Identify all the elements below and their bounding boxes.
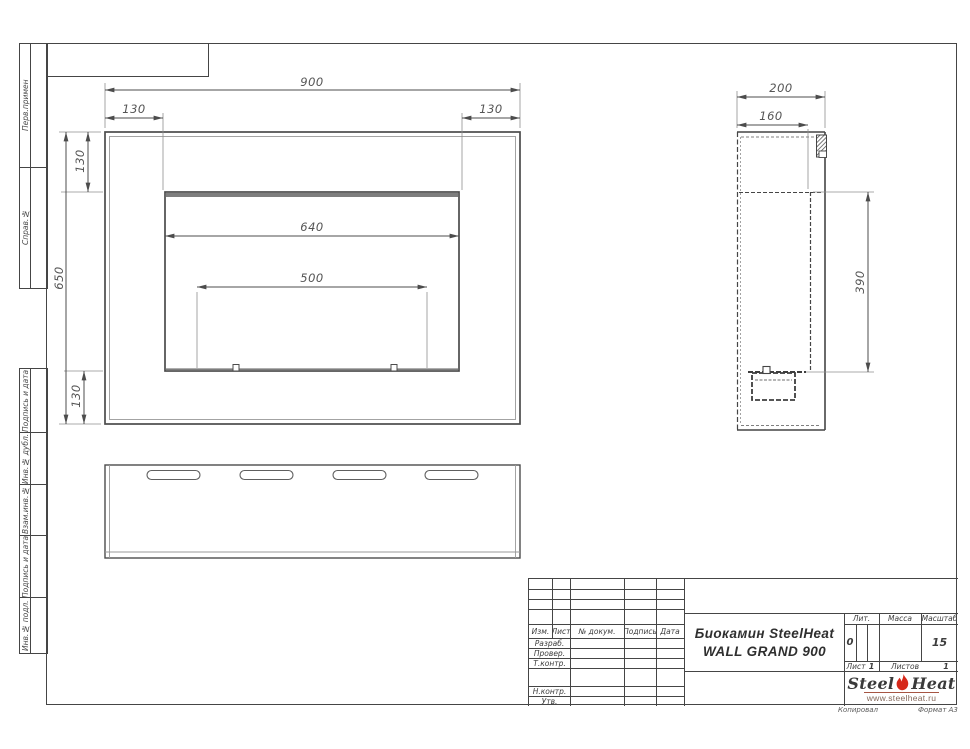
dim-opening-width: 640 bbox=[300, 220, 323, 234]
document-title-line1: Биокамин SteelHeat bbox=[695, 626, 834, 641]
dim-burner-width: 500 bbox=[300, 271, 323, 285]
margin-label-sprav-no: Справ.№ bbox=[20, 168, 31, 287]
tb-row-checked: Провер. bbox=[529, 648, 570, 658]
tb-header-date: Дата bbox=[656, 624, 684, 638]
tb-lit-label: Лит. bbox=[844, 613, 879, 624]
margin-label-vzam-inv: Взам.инв.№ bbox=[20, 485, 31, 535]
margin-label-podpis-data-2: Подпись и дата bbox=[20, 536, 31, 597]
margin-label-podpis-data-1: Подпись и дата bbox=[20, 369, 31, 432]
copied-note: Копировал bbox=[838, 706, 878, 714]
tb-scale-value: 15 bbox=[921, 624, 958, 661]
left-margin-top-strip: Перв.примен Справ.№ bbox=[19, 43, 48, 289]
tb-row-approved: Утв. bbox=[529, 696, 570, 706]
document-title-line2: WALL GRAND 900 bbox=[703, 644, 826, 659]
logo-word-heat: Heat bbox=[911, 677, 955, 691]
tb-row-ncontrol: Н.контр. bbox=[529, 686, 570, 696]
format-note: Формат А3 bbox=[918, 706, 958, 714]
logo-website: www.steelheat.ru bbox=[864, 692, 940, 703]
tb-row-developed: Разраб. bbox=[529, 638, 570, 648]
tb-scale-label: Масштаб bbox=[921, 613, 958, 624]
flame-icon bbox=[895, 674, 910, 691]
drawing-sheet: Перв.примен Справ.№ Подпись и дата Инв.№… bbox=[0, 0, 970, 749]
dim-side-depth: 200 bbox=[769, 81, 792, 95]
tb-header-izm: Изм. bbox=[529, 624, 552, 638]
dim-front-bottom-offset: 130 bbox=[69, 384, 83, 407]
tb-sheet-value: 1 bbox=[865, 661, 878, 671]
logo-word-steel: Steel bbox=[847, 677, 894, 691]
left-margin-bottom-strip: Подпись и дата Инв.№ дубл. Взам.инв.№ По… bbox=[19, 368, 48, 654]
tb-lit-value: 0 bbox=[844, 624, 856, 661]
top-left-stamp-box bbox=[46, 43, 209, 77]
margin-label-inv-dubl: Инв.№ дубл. bbox=[20, 433, 31, 484]
tb-sheet-label: Лист bbox=[845, 661, 867, 671]
company-logo: Steel Heat www.steelheat.ru bbox=[845, 672, 958, 705]
tb-header-doc: № докум. bbox=[570, 624, 624, 638]
tb-header-list: Лист bbox=[552, 624, 570, 638]
margin-label-perv-primen: Перв.примен bbox=[20, 44, 31, 167]
margin-label-inv-podl: Инв.№ подл. bbox=[20, 598, 31, 653]
dim-front-width: 900 bbox=[300, 75, 323, 89]
tb-row-tcontrol: Т.контр. bbox=[529, 658, 570, 668]
dim-side-inner-depth: 160 bbox=[759, 109, 782, 123]
dim-side-opening-height: 390 bbox=[853, 270, 867, 293]
dim-front-top-offset: 130 bbox=[73, 149, 87, 172]
document-title-cell: Биокамин SteelHeat WALL GRAND 900 bbox=[685, 614, 844, 671]
tb-header-sign: Подпись bbox=[624, 624, 656, 638]
tb-sheets-value: 1 bbox=[937, 661, 955, 671]
dim-front-height: 650 bbox=[52, 266, 66, 289]
tb-sheets-label: Листов bbox=[881, 661, 929, 671]
dim-front-left-offset: 130 bbox=[122, 102, 145, 116]
dim-front-right-offset: 130 bbox=[479, 102, 502, 116]
title-block: Изм. Лист № докум. Подпись Дата Разраб. … bbox=[528, 578, 958, 706]
tb-mass-label: Масса bbox=[879, 613, 921, 624]
